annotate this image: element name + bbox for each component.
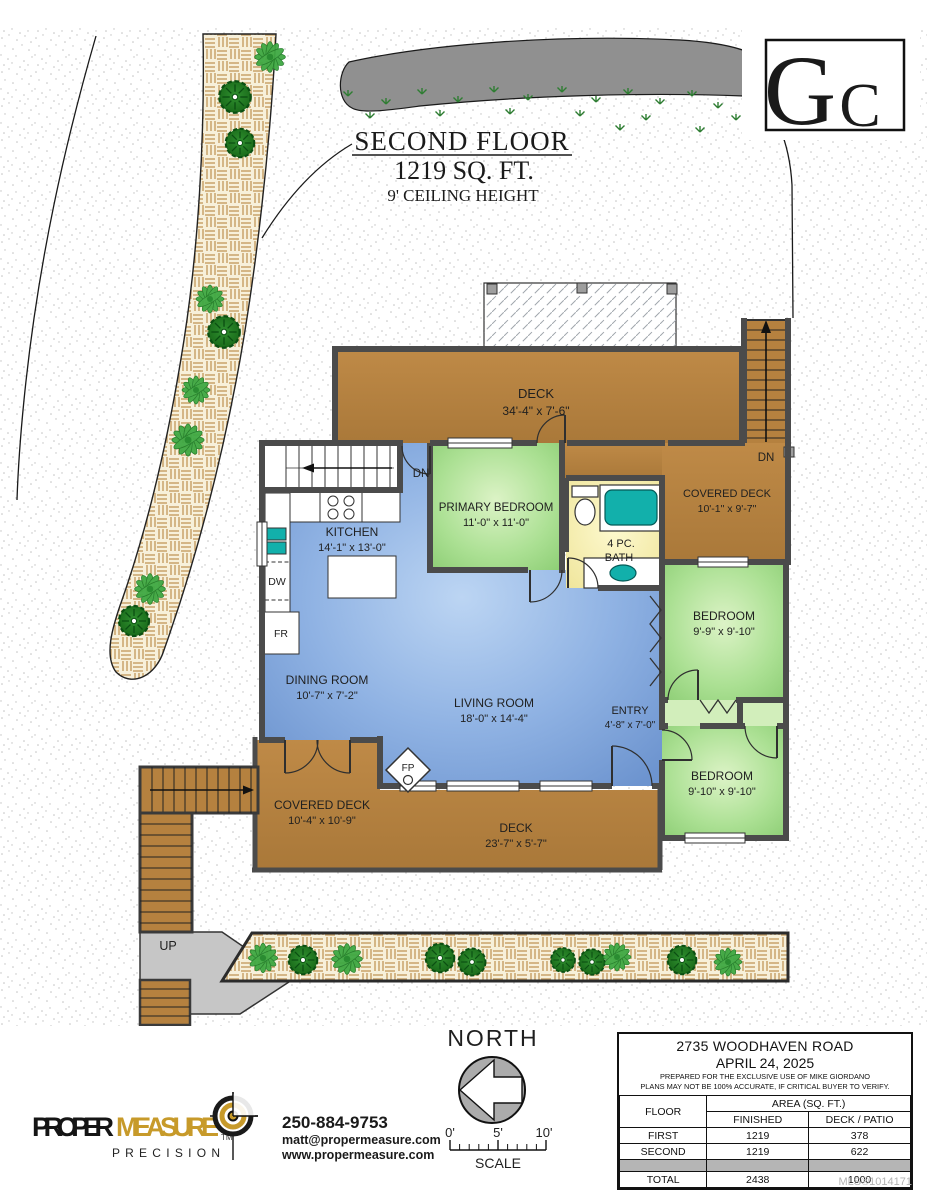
fridge-label: FR	[274, 628, 288, 640]
bath-sink	[610, 565, 636, 581]
kitchen-dims: 14'-1" x 13'-0"	[318, 542, 386, 554]
tree-icon	[219, 81, 251, 113]
north-label: NORTH	[447, 1025, 538, 1051]
up-label: UP	[159, 939, 176, 953]
bath-label-2: BATH	[605, 552, 634, 564]
covered-deck-bottom-label: COVERED DECK	[274, 798, 370, 812]
col-area: AREA (SQ. FT.)	[707, 1096, 911, 1112]
right-stairs-dn-label: DN	[758, 452, 775, 464]
spacer-row	[620, 1160, 911, 1172]
brand-sub: P R E C I S I O N	[112, 1146, 220, 1160]
deck-strip-above-bath	[562, 443, 668, 480]
tree-icon	[119, 606, 149, 636]
gc-logo-c: C	[839, 72, 880, 140]
deck-top-dims: 34'-4" x 7'-6"	[502, 404, 569, 418]
kitchen-label: KITCHEN	[326, 525, 379, 539]
tree-icon	[579, 949, 605, 975]
spacer-cell	[809, 1160, 911, 1172]
cell-total-label: TOTAL	[620, 1172, 707, 1188]
living-label: LIVING ROOM	[454, 696, 534, 710]
cell-deck: 378	[809, 1128, 911, 1144]
deck-top-label: DECK	[518, 386, 554, 401]
title-area: 1219 SQ. FT.	[394, 156, 534, 185]
table-row: SECOND 1219 622	[620, 1144, 911, 1160]
spacer-cell	[707, 1160, 809, 1172]
bedroom2-dims: 9'-10" x 9'-10"	[688, 786, 756, 798]
tree-icon	[426, 944, 455, 973]
tree-icon	[668, 946, 697, 975]
floor-plan-drawing: SECOND FLOOR 1219 SQ. FT. 9' CEILING HEI…	[0, 0, 927, 1200]
tree-icon	[226, 129, 255, 158]
scale-tick-5: 5'	[493, 1125, 503, 1140]
scale-tick-10: 10'	[536, 1125, 553, 1140]
disclaimer-line1: PREPARED FOR THE EXCLUSIVE USE OF MIKE G…	[619, 1072, 911, 1081]
fireplace-label: FP	[402, 763, 415, 774]
tree-icon	[551, 948, 575, 972]
toilet-bowl	[575, 499, 595, 525]
deck-bottom-label: DECK	[499, 821, 532, 835]
scale-tick-0: 0'	[445, 1125, 455, 1140]
tree-icon	[208, 316, 240, 348]
brand-phone: 250-884-9753	[282, 1113, 388, 1132]
cell-floor: FIRST	[620, 1128, 707, 1144]
bathtub	[605, 490, 657, 525]
deck-bottom-dims: 23'-7" x 5'-7"	[485, 838, 547, 850]
tree-icon	[459, 949, 486, 976]
covered-deck-bottom-dims: 10'-4" x 10'-9"	[288, 815, 356, 827]
stairwell-floor	[262, 443, 400, 490]
stove-burner	[328, 496, 338, 506]
page-title: SECOND FLOOR	[354, 126, 569, 156]
kitchen-sink	[267, 528, 286, 540]
brand-part2: MEASURE	[116, 1112, 219, 1142]
bedroom2-label: BEDROOM	[691, 769, 753, 783]
stove-burner	[328, 509, 338, 519]
cell-finished: 1219	[707, 1144, 809, 1160]
disclaimer-line2: PLANS MAY NOT BE 100% ACCURATE, IF CRITI…	[619, 1082, 911, 1091]
spacer-cell	[620, 1160, 707, 1172]
bedroom1-dims: 9'-9" x 9'-10"	[693, 626, 755, 638]
plan-date: APRIL 24, 2025	[619, 1055, 911, 1071]
covered-deck-top-dims: 10'-1" x 9'-7"	[698, 503, 757, 515]
toilet-tank	[572, 486, 598, 497]
table-row: FIRST 1219 378	[620, 1128, 911, 1144]
dining-label: DINING ROOM	[286, 673, 369, 687]
kitchen-island	[328, 556, 396, 598]
tree-icon	[289, 946, 318, 975]
gc-logo: G C	[742, 22, 920, 146]
gc-logo-g: G	[764, 35, 836, 146]
stairs-dn-label: DN	[413, 468, 430, 480]
living-dims: 18'-0" x 14'-4"	[460, 713, 528, 725]
covered-deck-top-label: COVERED DECK	[683, 488, 772, 500]
closet-band-floor	[662, 700, 786, 726]
col-finished: FINISHED	[707, 1112, 809, 1128]
scale-label: SCALE	[475, 1155, 521, 1171]
col-deck: DECK / PATIO	[809, 1112, 911, 1128]
entry-dims: 4'-8" x 7'-0"	[605, 720, 656, 731]
mls-number: MLS®1014171	[790, 1176, 912, 1188]
title-ceiling: 9' CEILING HEIGHT	[387, 186, 539, 205]
area-table: FLOOR AREA (SQ. FT.) FINISHED DECK / PAT…	[619, 1095, 911, 1188]
roof-overhang	[484, 283, 677, 352]
cell-deck: 622	[809, 1144, 911, 1160]
cell-floor: SECOND	[620, 1144, 707, 1160]
property-address: 2735 WOODHAVEN ROAD	[619, 1038, 911, 1054]
kitchen-sink	[267, 542, 286, 554]
col-floor: FLOOR	[620, 1096, 707, 1128]
primary-bedroom-dims: 11'-0" x 11'-0"	[463, 517, 529, 529]
brand-part1: PROPER	[32, 1112, 114, 1142]
primary-bedroom-label: PRIMARY BEDROOM	[439, 502, 554, 514]
brand-email: matt@propermeasure.com	[282, 1133, 441, 1147]
plan-info-box: 2735 WOODHAVEN ROAD APRIL 24, 2025 PREPA…	[617, 1032, 913, 1190]
cell-finished: 1219	[707, 1128, 809, 1144]
brand-web: www.propermeasure.com	[281, 1148, 434, 1162]
bedroom1-label: BEDROOM	[693, 609, 755, 623]
stove-burner	[344, 496, 354, 506]
entry-label: ENTRY	[611, 705, 649, 717]
bath-label-1: 4 PC.	[607, 538, 635, 550]
stove-burner	[344, 509, 354, 519]
dishwasher-label: DW	[268, 576, 286, 588]
planting-bed-bottom	[222, 933, 788, 981]
dining-dims: 10'-7" x 7'-2"	[296, 690, 358, 702]
